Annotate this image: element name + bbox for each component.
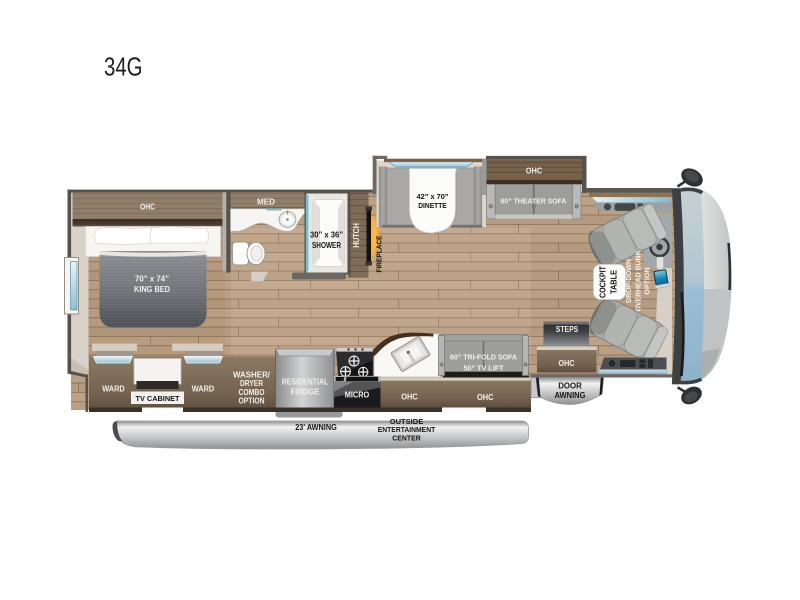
svg-text:50” TV LIFT: 50” TV LIFT [464,363,505,372]
svg-text:COCKPIT: COCKPIT [599,266,608,298]
svg-text:OHC: OHC [526,165,543,175]
svg-text:23' AWNING: 23' AWNING [295,423,337,432]
svg-text:DINETTE: DINETTE [418,201,447,210]
svg-text:TV CABINET: TV CABINET [136,394,180,403]
svg-text:OPTION: OPTION [239,397,265,406]
svg-text:DRYER: DRYER [240,379,263,388]
svg-text:FIREPLACE: FIREPLACE [375,236,384,273]
svg-text:WARD: WARD [102,384,125,393]
svg-text:KING BED: KING BED [134,285,170,294]
svg-text:WARD: WARD [192,384,215,393]
svg-text:OHC: OHC [477,392,494,402]
svg-text:HUTCH: HUTCH [352,223,361,248]
svg-text:OHC: OHC [559,359,575,368]
svg-text:RESIDENTIAL: RESIDENTIAL [282,377,329,386]
svg-text:WASHER/: WASHER/ [233,370,271,379]
svg-text:SHOWER: SHOWER [312,241,341,250]
svg-text:MICRO: MICRO [345,391,370,400]
svg-text:34G: 34G [104,54,143,82]
svg-text:30” x 36”: 30” x 36” [310,231,343,240]
svg-text:STEPS: STEPS [556,325,579,334]
svg-text:AWNING: AWNING [555,391,586,400]
svg-text:OPTION: OPTION [643,267,652,295]
svg-text:OHC: OHC [140,202,155,212]
svg-text:COMBO: COMBO [239,388,265,397]
svg-text:MED: MED [257,196,275,206]
svg-text:42” x 70”: 42” x 70” [417,192,449,201]
svg-text:60” TRI-FOLD SOFA: 60” TRI-FOLD SOFA [450,353,517,362]
svg-text:CENTER: CENTER [392,434,421,443]
svg-text:OVERHEAD BUNK: OVERHEAD BUNK [634,250,643,312]
svg-text:DOOR: DOOR [558,382,582,391]
svg-text:70” x 74”: 70” x 74” [135,275,169,284]
svg-text:DROP-DOWN: DROP-DOWN [624,259,633,303]
svg-text:60” THEATER SOFA: 60” THEATER SOFA [501,197,567,206]
svg-text:FRIDGE: FRIDGE [291,387,320,396]
svg-text:OHC: OHC [401,391,418,401]
svg-text:TABLE: TABLE [610,269,619,294]
